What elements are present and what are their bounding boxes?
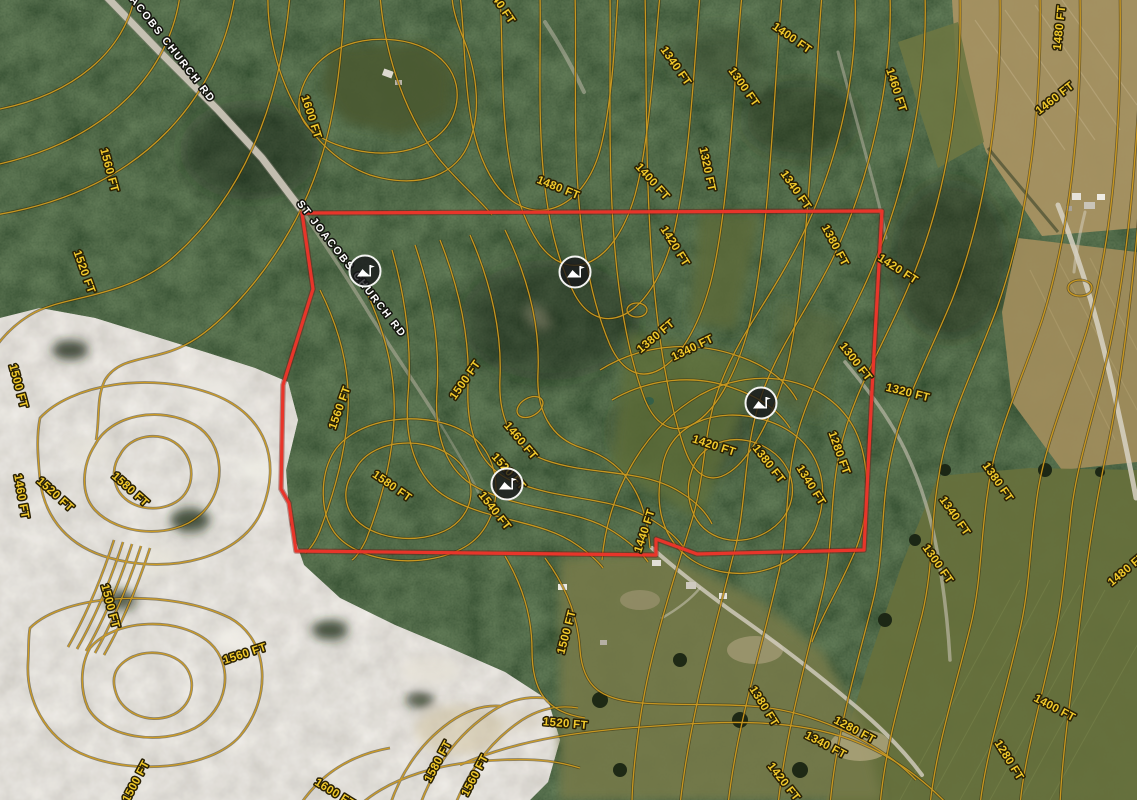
elevation-point-marker[interactable] (492, 469, 523, 500)
elevation-point-marker[interactable] (560, 257, 591, 288)
marker-circle (560, 257, 591, 288)
marker-circle (350, 256, 381, 287)
elevation-point-marker[interactable] (746, 388, 777, 419)
marker-circle (746, 388, 777, 419)
map-canvas[interactable]: 1600 FT1440 FT1480 FT1400 FT1340 FT1320 … (0, 0, 1137, 800)
elevation-point-marker[interactable] (350, 256, 381, 287)
satellite-imagery (0, 0, 1137, 800)
marker-circle (492, 469, 523, 500)
